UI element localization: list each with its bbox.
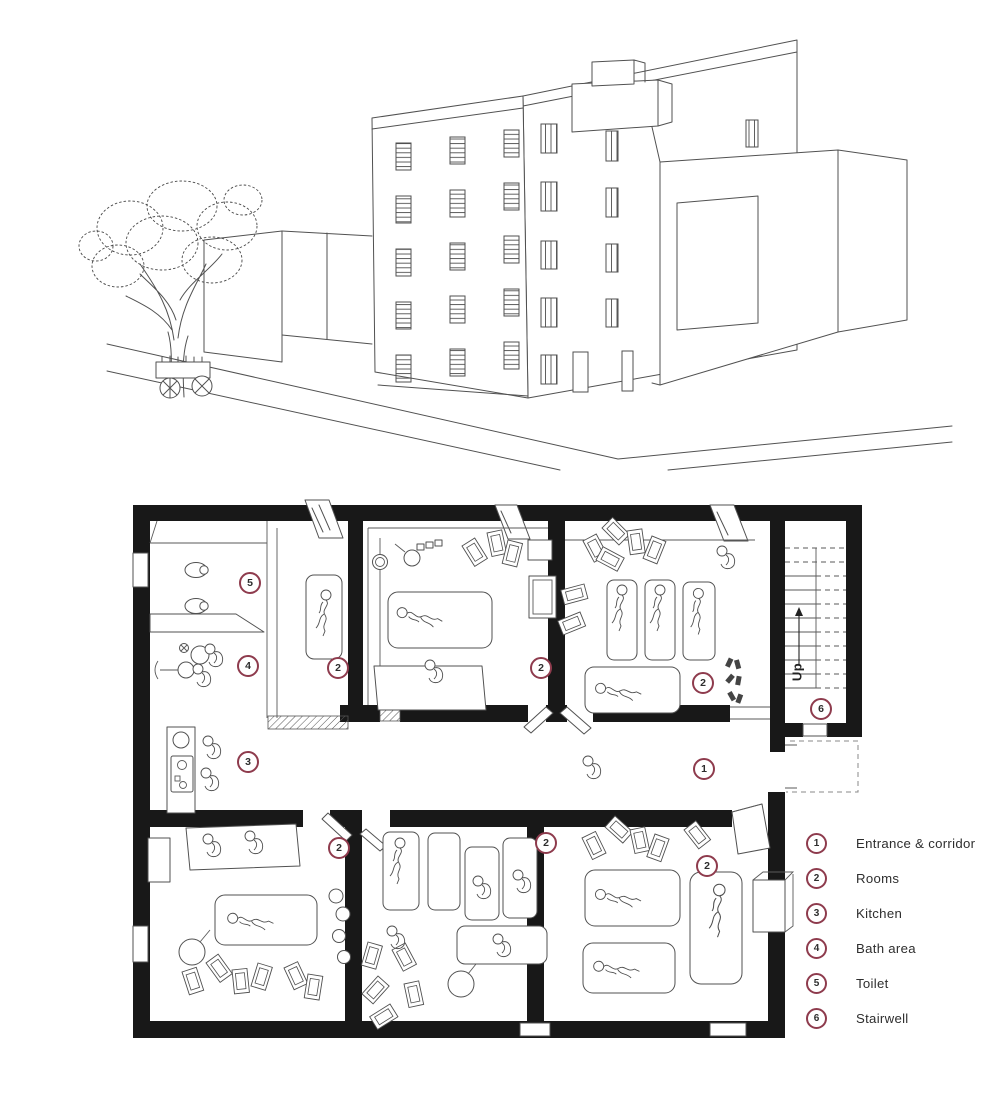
mattress: [306, 575, 342, 659]
legend-badge-1: 1: [806, 833, 827, 854]
room-top-middle-furniture: [373, 530, 557, 710]
person-corridor: [583, 756, 601, 779]
plan-marker-room-bottom-right: 2: [696, 855, 718, 877]
plan-marker-room-top-left: 2: [327, 657, 349, 679]
balloon-icon: [448, 971, 474, 997]
legend-badge-4: 4: [806, 938, 827, 959]
mattress: [457, 926, 547, 964]
pot-icon: [373, 555, 388, 570]
legend-label-toilet: Toilet: [856, 976, 889, 991]
plan-marker-bath: 4: [237, 655, 259, 677]
pan-icon: [404, 550, 420, 566]
legend-item-kitchen: 3 Kitchen: [806, 896, 975, 931]
stove-icon: [171, 756, 193, 792]
plan-marker-toilet: 5: [239, 572, 261, 594]
mattress: [428, 833, 460, 910]
room-top-right-furniture: [558, 517, 743, 713]
kitchen-fixtures: [167, 727, 221, 813]
table: [374, 666, 486, 710]
legend-item-bath: 4 Bath area: [806, 931, 975, 966]
right-buildings: [652, 127, 907, 385]
entrance-porch: [785, 741, 858, 792]
legend-label-entrance: Entrance & corridor: [856, 836, 975, 851]
stairs-up-label: Up: [790, 663, 805, 681]
plan-marker-room-bottom-left: 2: [328, 837, 350, 859]
plan-marker-room-bottom-middle: 2: [535, 832, 557, 854]
legend-badge-5: 5: [806, 973, 827, 994]
room-top-left-furniture: [306, 575, 342, 659]
legend-label-bath: Bath area: [856, 941, 916, 956]
plan-marker-kitchen: 3: [237, 751, 259, 773]
main-building-front-face: [372, 96, 528, 398]
legend-item-stairwell: 6 Stairwell: [806, 1001, 975, 1036]
legend: 1 Entrance & corridor 2 Rooms 3 Kitchen …: [806, 826, 975, 1036]
legend-label-stairwell: Stairwell: [856, 1011, 909, 1026]
left-building: [204, 231, 372, 362]
balloon-icon: [179, 939, 205, 965]
bath-fixtures: [155, 644, 223, 687]
page: 1 2 2 2 2 2 2 3 4 5 6 Up 1 Entrance & co…: [0, 0, 1000, 1118]
legend-badge-2: 2: [806, 868, 827, 889]
plan-marker-room-top-middle: 2: [530, 657, 552, 679]
toilet-fixtures: [185, 563, 208, 614]
legend-label-kitchen: Kitchen: [856, 906, 902, 921]
legend-item-rooms: 2 Rooms: [806, 861, 975, 896]
plan-marker-stairwell: 6: [810, 698, 832, 720]
shoes-icons: [725, 658, 743, 704]
toilet-icon: [185, 563, 208, 578]
legend-item-toilet: 5 Toilet: [806, 966, 975, 1001]
plan-marker-corridor: 1: [693, 758, 715, 780]
legend-badge-6: 6: [806, 1008, 827, 1029]
legend-badge-3: 3: [806, 903, 827, 924]
room-bottom-middle-furniture: [361, 832, 547, 1029]
toilet-icon: [185, 599, 208, 614]
plan-marker-room-top-right: 2: [692, 672, 714, 694]
table: [186, 824, 300, 870]
building-illustration: [79, 40, 952, 470]
legend-item-entrance: 1 Entrance & corridor: [806, 826, 975, 861]
legend-label-rooms: Rooms: [856, 871, 899, 886]
room-bottom-left-furniture: [179, 824, 351, 1000]
room-bottom-right-furniture: [582, 816, 742, 993]
sink-icon: [173, 732, 189, 748]
